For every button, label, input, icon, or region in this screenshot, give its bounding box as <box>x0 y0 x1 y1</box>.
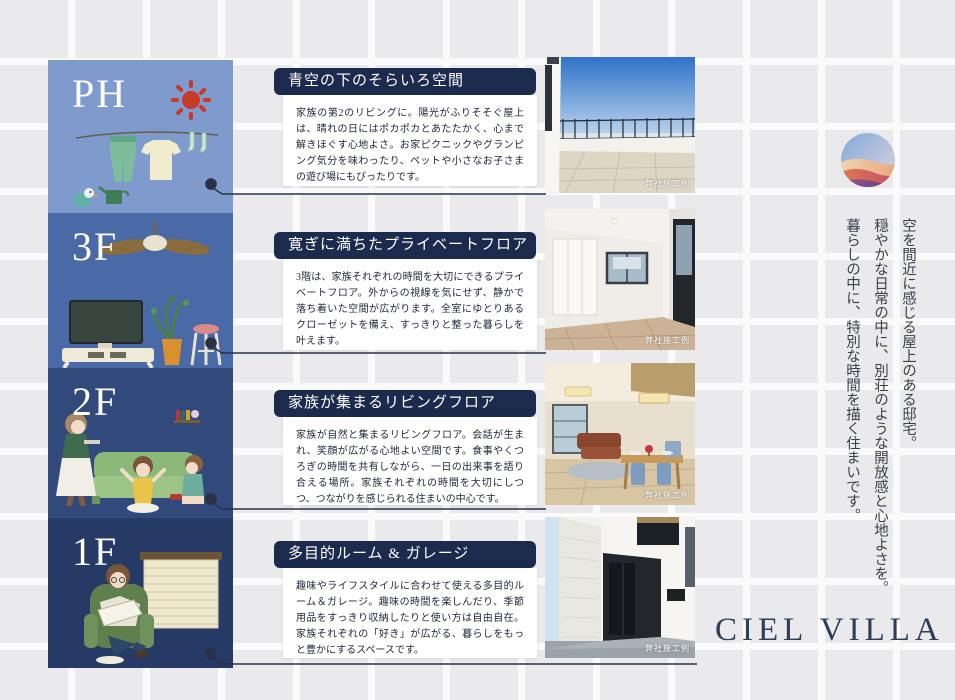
tagline-line-2: 穏やかな日常の中に、別荘のような開放感と心地よさを。 <box>866 218 894 620</box>
floor-label-ph: PH <box>72 74 127 114</box>
floor-block-1f: 1F <box>48 518 233 668</box>
floor-block-2f: 2F <box>48 368 233 518</box>
jeans <box>110 136 136 182</box>
section-title-3f: 寛ぎに満ちたプライベートフロア <box>274 232 536 259</box>
section-title-1f: 多目的ルーム & ガレージ <box>274 541 536 568</box>
floor-block-3f: 3F <box>48 213 233 368</box>
stool-icon <box>192 324 220 365</box>
tagline-line-3: 暮らしの中に、特別な時間を描く住まいです。 <box>838 218 866 620</box>
photo-private-room: 弊社施工例 <box>545 209 695 350</box>
section-description-3f: 3階は、家族それぞれの時間を大切にできるプライベートフロア。外からの視線を気にせ… <box>283 259 537 350</box>
bookshelf-icon <box>174 410 200 423</box>
vertical-tagline: 空を間近に感じる屋上のある邸宅。 穏やかな日常の中に、別荘のような開放感と心地よ… <box>836 218 922 620</box>
sun-icon <box>173 82 209 118</box>
sofa <box>577 433 621 459</box>
brochure-page: PH <box>0 0 955 700</box>
tagline-line-1: 空を間近に感じる屋上のある邸宅。 <box>894 218 922 620</box>
photo-caption: 弊社施工例 <box>645 178 690 189</box>
socks <box>188 132 206 152</box>
floor-label-2f: 2F <box>72 382 118 422</box>
floor-block-ph: PH <box>48 60 233 213</box>
tv-icon <box>62 301 154 368</box>
photo-living-dining: 弊社施工例 <box>545 363 695 505</box>
plant-icon <box>151 296 189 365</box>
floor-label-1f: 1F <box>72 532 118 572</box>
mother-figure <box>56 413 100 506</box>
t-shirt <box>141 140 181 180</box>
brand-logo-icon <box>840 132 896 188</box>
man-figure <box>96 564 148 664</box>
section-title-2f: 家族が集まるリビングフロア <box>274 390 536 417</box>
section-description-ph: 家族の第2のリビングに。陽光がふりそそぐ屋上は、晴れの日にはポカポカとあたたかく… <box>283 95 537 186</box>
photo-rooftop-terrace: 弊社施工例 <box>545 57 695 193</box>
photo-caption: 弊社施工例 <box>645 490 690 501</box>
photo-caption: 弊社施工例 <box>645 643 690 654</box>
floor-label-3f: 3F <box>72 227 118 267</box>
brand-wordmark: CIEL VILLA <box>715 612 943 649</box>
bird-icon <box>73 188 99 207</box>
section-description-2f: 家族が自然と集まるリビングフロア。会話が生まれ、笑顔が広がる心地よい空間です。食… <box>283 417 537 505</box>
photo-caption: 弊社施工例 <box>645 335 690 346</box>
photo-house-exterior: 弊社施工例 <box>545 517 695 658</box>
clothesline <box>76 132 218 138</box>
section-title-ph: 青空の下のそらいろ空間 <box>274 68 536 95</box>
section-description-1f: 趣味やライフスタイルに合わせて使える多目的ルーム＆ガレージ。趣味の時間を楽しんだ… <box>283 568 537 658</box>
watering-can-icon <box>98 186 128 204</box>
